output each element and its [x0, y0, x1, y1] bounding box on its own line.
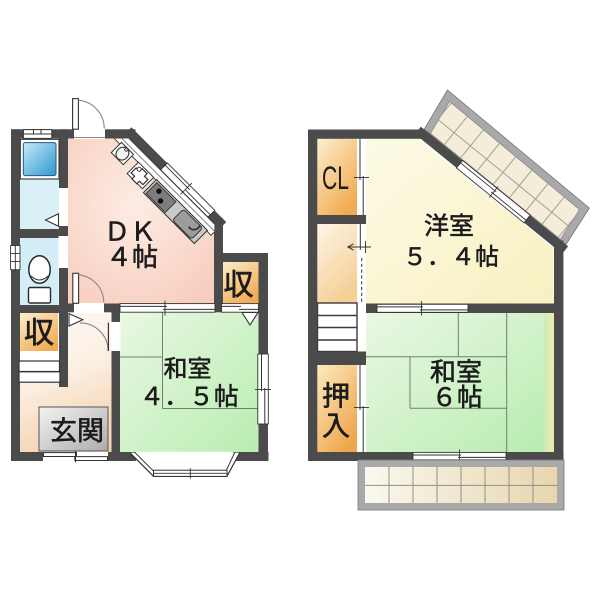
- svg-text:CL: CL: [322, 160, 349, 196]
